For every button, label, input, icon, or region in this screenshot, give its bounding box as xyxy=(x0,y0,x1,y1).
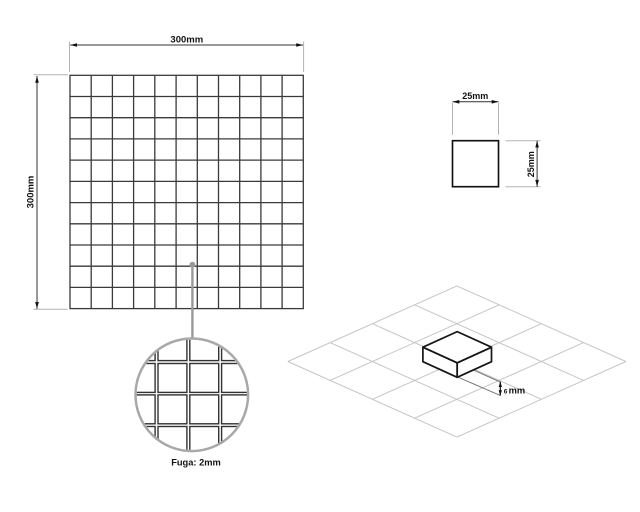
svg-text:300mm: 300mm xyxy=(26,176,37,209)
svg-text:mm: mm xyxy=(509,386,526,396)
svg-text:25mm: 25mm xyxy=(462,91,488,101)
svg-text:300mm: 300mm xyxy=(170,34,203,45)
svg-text:Fuga: 2mm: Fuga: 2mm xyxy=(171,458,221,468)
svg-text:25mm: 25mm xyxy=(526,151,536,177)
svg-text:6: 6 xyxy=(504,389,508,396)
